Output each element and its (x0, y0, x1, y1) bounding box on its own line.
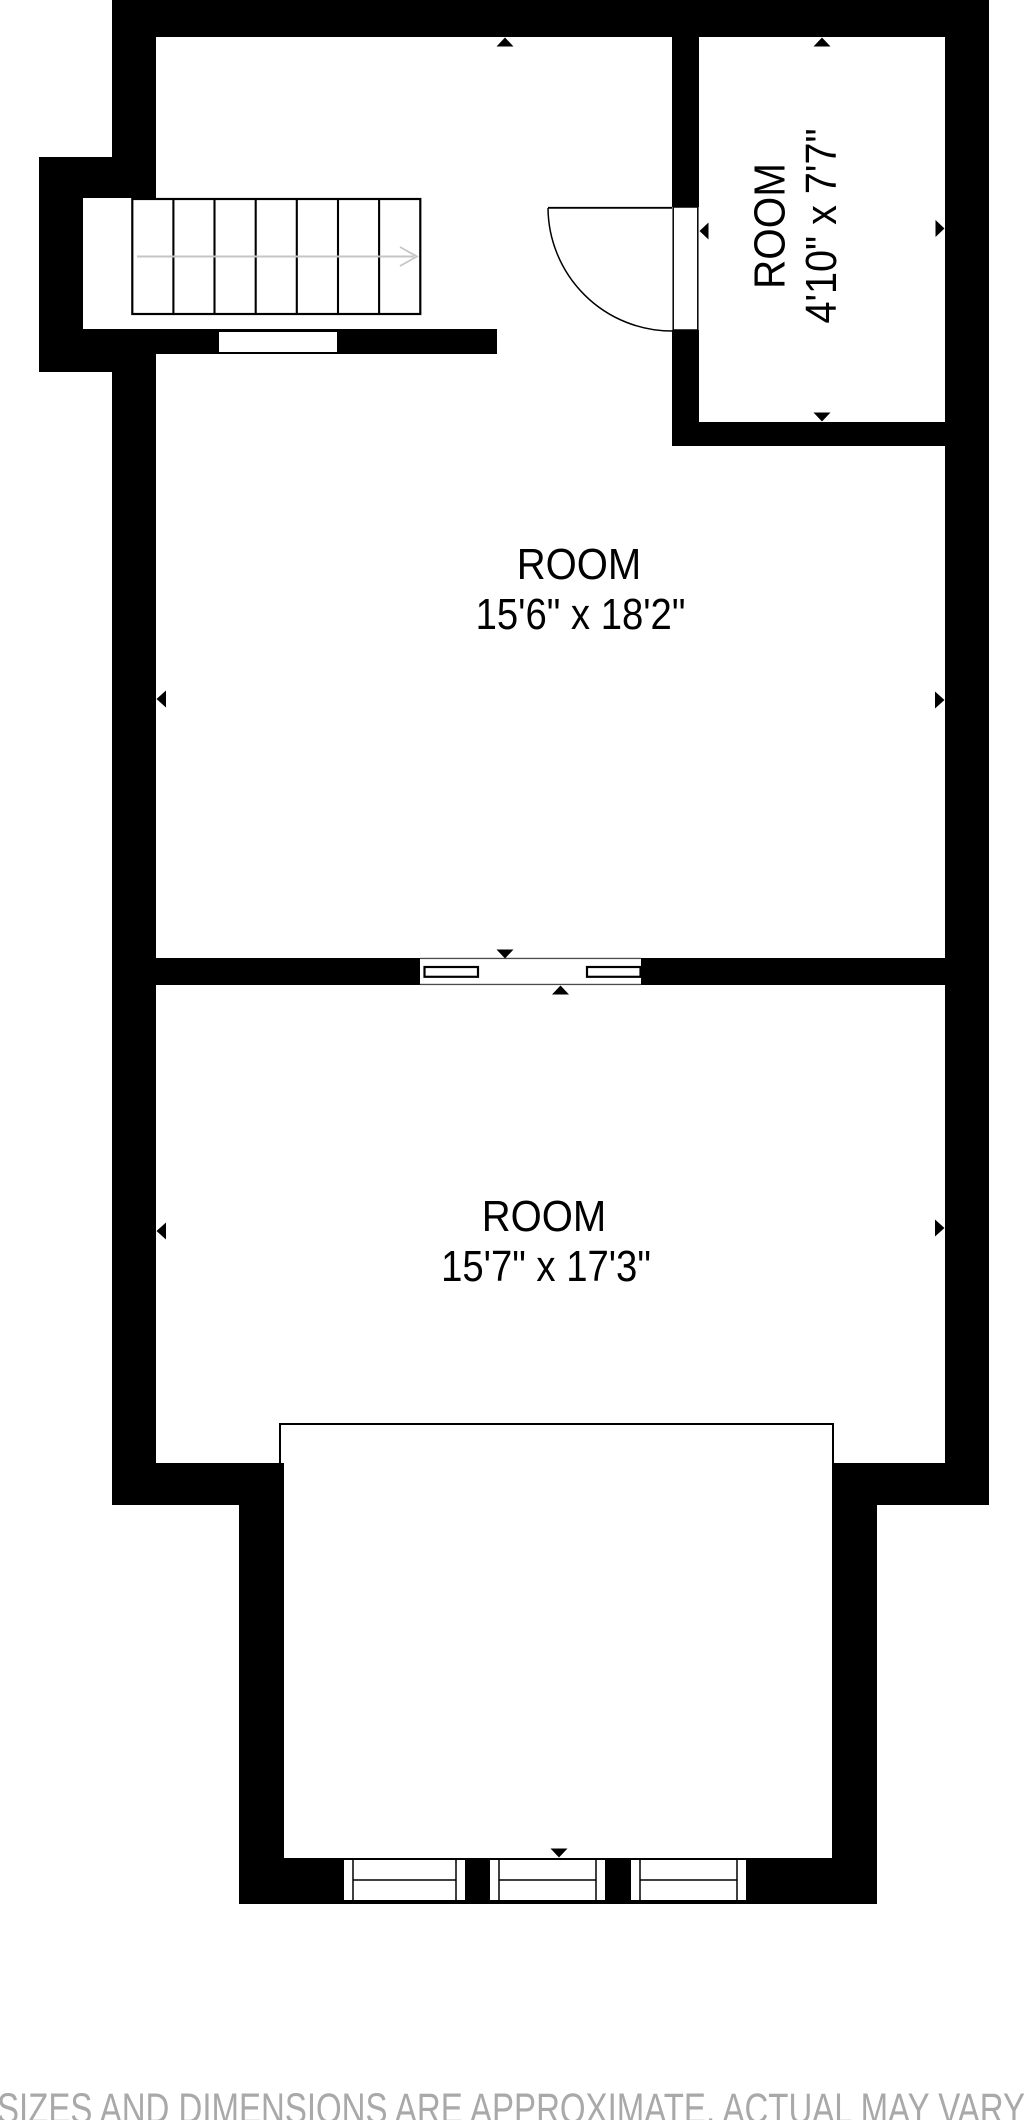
svg-text:ROOM: ROOM (745, 163, 794, 289)
svg-text:4'10" x 7'7": 4'10" x 7'7" (796, 128, 845, 323)
svg-text:15'7" x 17'3": 15'7" x 17'3" (441, 1242, 651, 1291)
svg-text:15'6" x 18'2": 15'6" x 18'2" (476, 590, 686, 639)
svg-text:ROOM: ROOM (482, 1191, 607, 1240)
svg-text:ROOM: ROOM (517, 539, 642, 588)
svg-text:SIZES AND DIMENSIONS ARE APPRO: SIZES AND DIMENSIONS ARE APPROXIMATE, AC… (0, 2085, 1025, 2120)
